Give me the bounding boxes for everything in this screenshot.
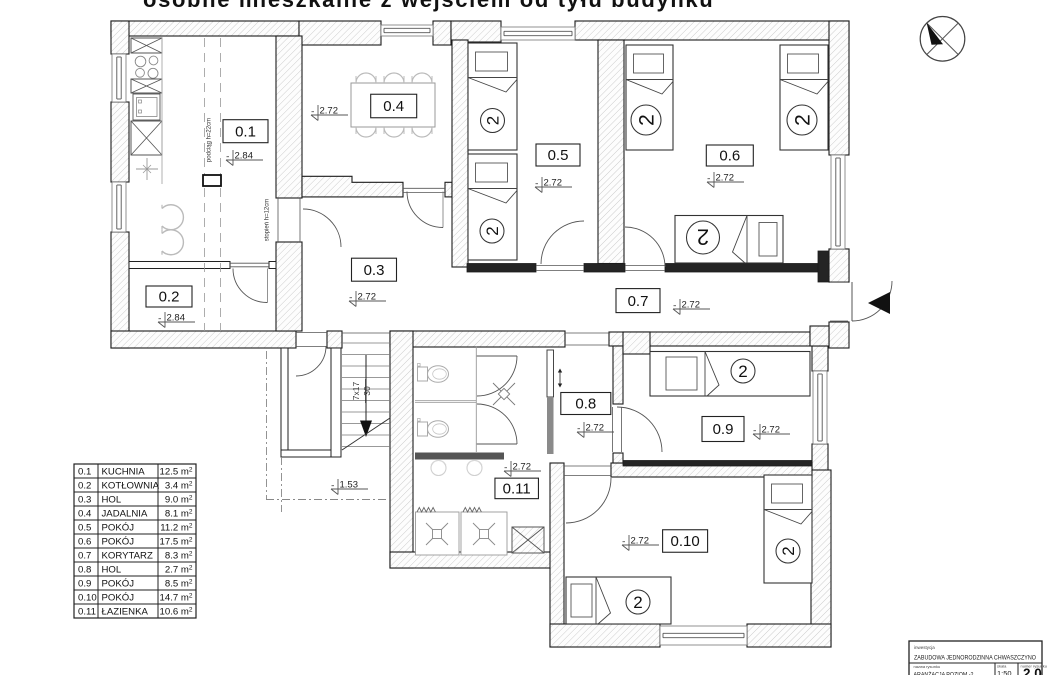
svg-text:0.5: 0.5 <box>78 523 91 534</box>
svg-text:stopień h=12cm: stopień h=12cm <box>265 199 271 242</box>
svg-text:1:50: 1:50 <box>997 669 1012 675</box>
svg-text:KUCHNIA: KUCHNIA <box>102 467 146 478</box>
svg-text:17.5 m2: 17.5 m2 <box>160 537 193 548</box>
svg-text:2.72: 2.72 <box>320 106 339 117</box>
svg-text:2.72: 2.72 <box>716 173 735 184</box>
svg-text:0.7: 0.7 <box>78 551 91 562</box>
svg-text:14.7 m2: 14.7 m2 <box>160 593 193 604</box>
svg-text:0.11: 0.11 <box>503 481 531 498</box>
svg-text:skala: skala <box>997 664 1007 669</box>
svg-text:HOL: HOL <box>102 495 122 506</box>
svg-text:2.72: 2.72 <box>513 462 532 473</box>
svg-text:0.4: 0.4 <box>78 509 92 520</box>
svg-text:ZABUDOWA JEDNORODZINNA CHWASZC: ZABUDOWA JEDNORODZINNA CHWASZCZYNO <box>914 655 1036 662</box>
svg-text:0.9: 0.9 <box>713 421 734 438</box>
svg-text:8.5 m2: 8.5 m2 <box>165 579 193 590</box>
svg-text:2: 2 <box>633 593 642 612</box>
svg-text:2.84: 2.84 <box>235 151 254 162</box>
svg-text:10.6 m2: 10.6 m2 <box>160 607 193 618</box>
svg-text:osobne mieszkanie z wejściem o: osobne mieszkanie z wejściem od tyłu bud… <box>143 0 714 12</box>
svg-text:2.72: 2.72 <box>682 300 701 311</box>
svg-text:0.3: 0.3 <box>364 262 385 279</box>
svg-text:2.7 m2: 2.7 m2 <box>165 565 193 576</box>
svg-text:POKÓJ: POKÓJ <box>102 593 135 604</box>
svg-text:2: 2 <box>779 546 798 555</box>
svg-text:2: 2 <box>636 114 659 126</box>
svg-text:HOL: HOL <box>102 565 122 576</box>
svg-text:0.1: 0.1 <box>235 123 256 140</box>
svg-text:KORYTARZ: KORYTARZ <box>102 551 153 562</box>
svg-text:0.6: 0.6 <box>719 148 740 165</box>
svg-text:0.4: 0.4 <box>383 98 404 115</box>
svg-text:1.53: 1.53 <box>340 480 359 491</box>
svg-text:2: 2 <box>697 225 709 250</box>
svg-text:2.0: 2.0 <box>1023 666 1042 675</box>
svg-text:0.10: 0.10 <box>670 533 699 550</box>
svg-text:2: 2 <box>792 114 815 126</box>
svg-text:KOTŁOWNIA: KOTŁOWNIA <box>102 481 160 492</box>
svg-text:0.11: 0.11 <box>78 607 96 618</box>
svg-text:2.72: 2.72 <box>358 292 377 303</box>
svg-text:JADALNIA: JADALNIA <box>102 509 148 520</box>
svg-text:podciąg h=22cm: podciąg h=22cm <box>207 118 213 162</box>
svg-text:8.3 m2: 8.3 m2 <box>165 551 193 562</box>
svg-text:0.8: 0.8 <box>575 396 596 413</box>
svg-text:0.8: 0.8 <box>78 565 91 576</box>
svg-text:2: 2 <box>484 116 503 125</box>
svg-text:0.3: 0.3 <box>78 495 91 506</box>
svg-text:9.0 m2: 9.0 m2 <box>165 495 193 506</box>
svg-text:0.5: 0.5 <box>548 147 569 164</box>
svg-text:0.10: 0.10 <box>78 593 97 604</box>
svg-text:inwestycja: inwestycja <box>914 645 935 650</box>
svg-text:POKÓJ: POKÓJ <box>102 579 135 590</box>
svg-text:nazwa rysunku: nazwa rysunku <box>914 664 941 669</box>
svg-text:30: 30 <box>362 386 372 396</box>
svg-text:0.1: 0.1 <box>78 467 91 478</box>
svg-text:ŁAZIENKA: ŁAZIENKA <box>102 607 149 618</box>
svg-text:2.72: 2.72 <box>586 423 605 434</box>
svg-text:2: 2 <box>483 226 502 235</box>
svg-text:0.2: 0.2 <box>78 481 91 492</box>
svg-text:2: 2 <box>738 362 747 381</box>
svg-text:12.5 m2: 12.5 m2 <box>160 467 193 478</box>
svg-text:2.72: 2.72 <box>544 178 563 189</box>
svg-text:0.7: 0.7 <box>628 293 649 310</box>
svg-text:11.2 m2: 11.2 m2 <box>160 523 193 534</box>
svg-text:0.2: 0.2 <box>159 289 180 306</box>
svg-text:POKÓJ: POKÓJ <box>102 537 135 548</box>
svg-text:3.4 m2: 3.4 m2 <box>165 481 193 492</box>
svg-text:0.6: 0.6 <box>78 537 91 548</box>
svg-text:2.72: 2.72 <box>762 425 781 436</box>
svg-text:2.84: 2.84 <box>167 313 186 324</box>
svg-text:0.9: 0.9 <box>78 579 91 590</box>
svg-text:2.72: 2.72 <box>631 536 650 547</box>
svg-text:8.1 m2: 8.1 m2 <box>165 509 193 520</box>
svg-text:POKÓJ: POKÓJ <box>102 523 135 534</box>
svg-text:7x17: 7x17 <box>351 382 361 401</box>
